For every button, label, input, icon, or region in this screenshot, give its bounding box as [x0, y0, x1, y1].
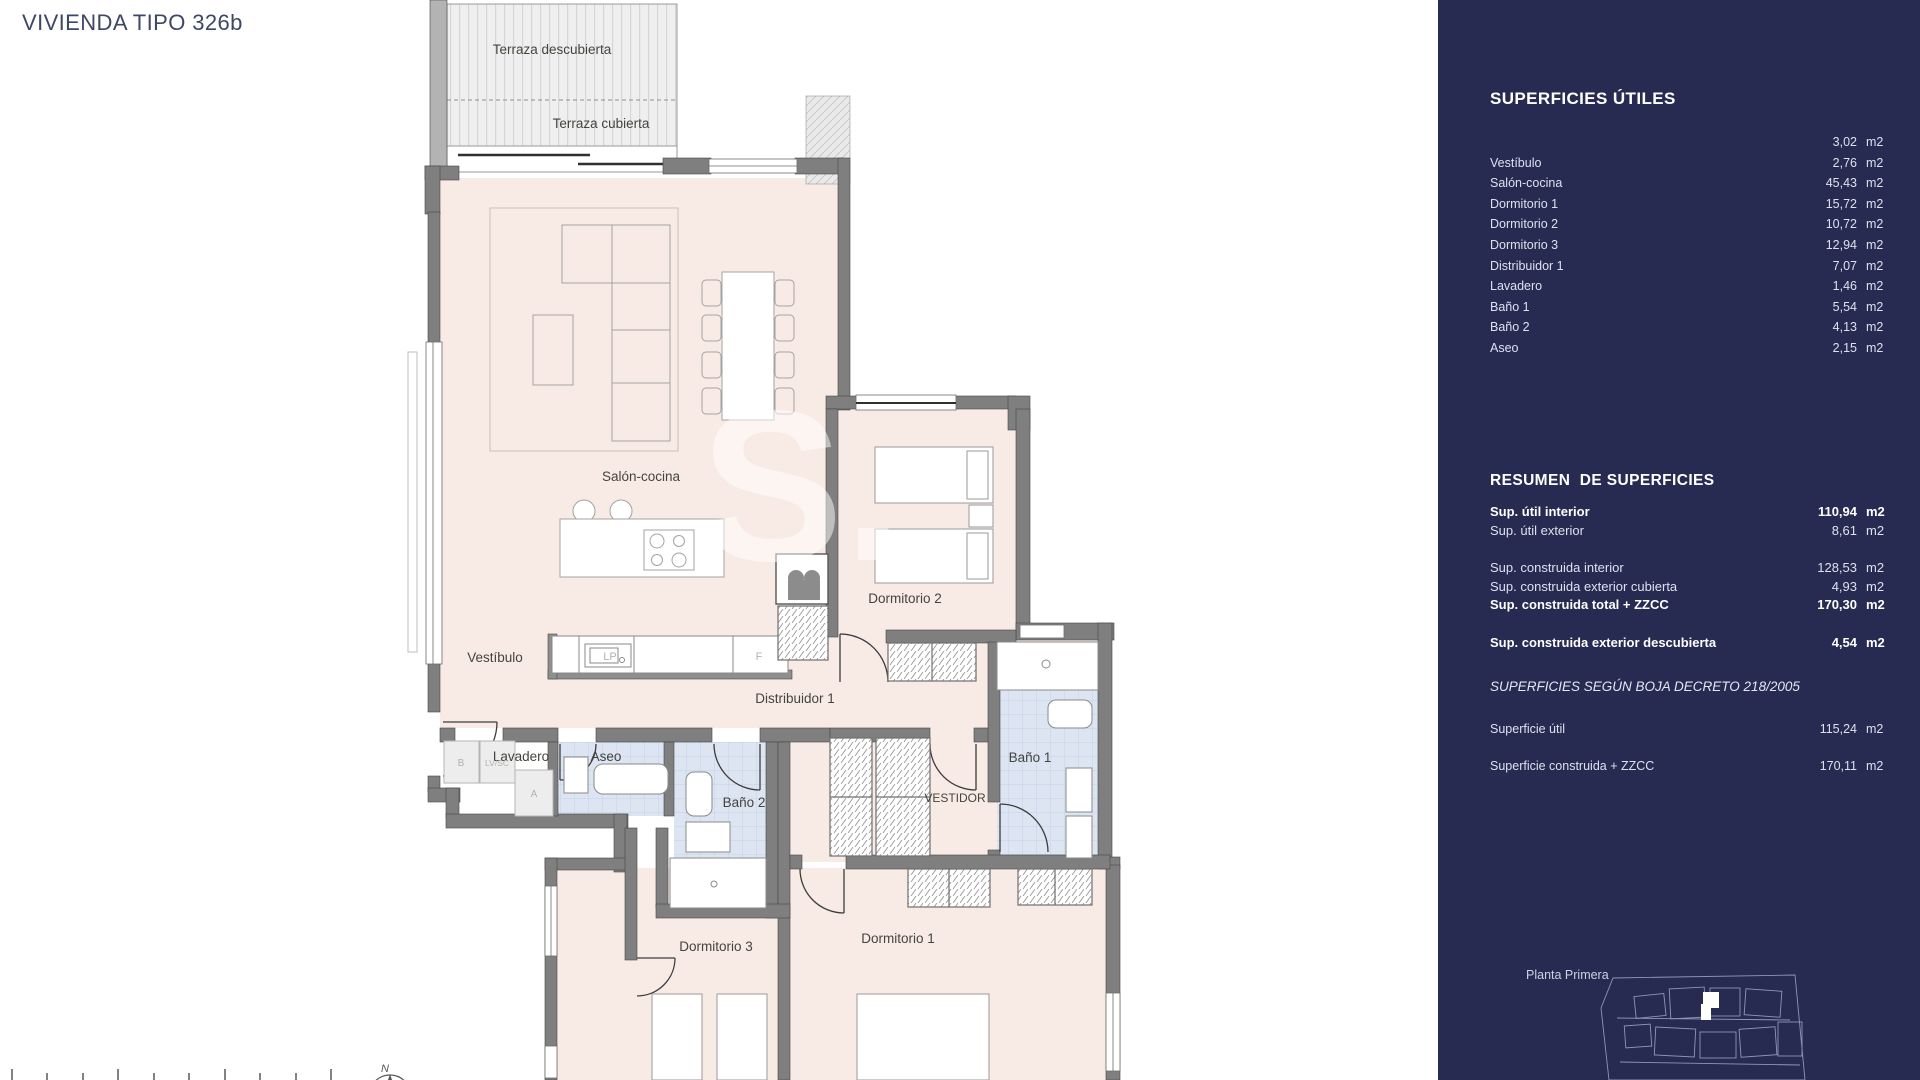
room-label-dormitorio1: Dormitorio 1: [861, 931, 935, 946]
resumen-section: RESUMEN DE SUPERFICIES Sup. útil interio…: [1490, 472, 1902, 653]
superficies-utiles-section: SUPERFICIES ÚTILES 3,02m2 Vestíbulo2,76m…: [1490, 89, 1902, 359]
site-key-plan: [1595, 970, 1920, 1080]
area-row: Dormitorio 312,94m2: [1490, 235, 1902, 256]
boja-title: SUPERFICIES SEGÚN BOJA DECRETO 218/2005: [1490, 679, 1902, 694]
label-lvsc: LV/SC: [485, 758, 509, 768]
label-f: F: [756, 651, 763, 663]
room-label-vestidor: VESTIDOR: [924, 791, 986, 805]
superficies-utiles-rows: 3,02m2 Vestíbulo2,76m2 Salón-cocina45,43…: [1490, 132, 1902, 359]
area-row: 3,02m2: [1490, 132, 1902, 153]
page: VIVIENDA TIPO 326b: [0, 0, 1920, 1080]
boja-section: SUPERFICIES SEGÚN BOJA DECRETO 218/2005 …: [1490, 679, 1902, 775]
resumen-group-construida: Sup. construida interior128,53m2 Sup. co…: [1490, 559, 1902, 615]
area-row: Aseo2,15m2: [1490, 338, 1902, 359]
summary-row: Sup. construida exterior descubierta4,54…: [1490, 634, 1902, 653]
resumen-group-util: Sup. útil interior110,94m2 Sup. útil ext…: [1490, 503, 1902, 540]
summary-row: Sup. construida total + ZZCC170,30m2: [1490, 596, 1902, 615]
terrace: [447, 4, 677, 172]
area-row: Dormitorio 115,72m2: [1490, 194, 1902, 215]
area-row: Lavadero1,46m2: [1490, 276, 1902, 297]
kitchen-counter: [552, 636, 788, 673]
summary-row: Sup. útil interior110,94m2: [1490, 503, 1902, 522]
room-label-dormitorio2: Dormitorio 2: [868, 591, 942, 606]
resumen-group-descubierta: Sup. construida exterior descubierta4,54…: [1490, 634, 1902, 653]
area-row: Distribuidor 17,07m2: [1490, 256, 1902, 277]
resumen-title: RESUMEN DE SUPERFICIES: [1490, 472, 1902, 490]
label-a: A: [531, 789, 538, 800]
floor-plan: S. Terraza descubierta Terraza cubierta …: [0, 0, 1438, 1080]
room-label-distribuidor: Distribuidor 1: [755, 691, 835, 706]
superficies-utiles-title: SUPERFICIES ÚTILES: [1490, 89, 1902, 109]
scale-bar: [12, 1069, 331, 1080]
summary-sidebar: SUPERFICIES ÚTILES 3,02m2 Vestíbulo2,76m…: [1438, 0, 1920, 1080]
room-label-vestibulo: Vestíbulo: [467, 650, 523, 665]
area-row: Baño 24,13m2: [1490, 317, 1902, 338]
summary-row: Sup. útil exterior8,61m2: [1490, 522, 1902, 541]
room-label-bano1: Baño 1: [1009, 750, 1052, 765]
room-label-dormitorio3: Dormitorio 3: [679, 939, 753, 954]
area-row: Baño 15,54m2: [1490, 297, 1902, 318]
summary-row: Sup. construida interior128,53m2: [1490, 559, 1902, 578]
floors-layer: [440, 178, 1110, 1080]
label-b: B: [458, 758, 465, 769]
room-label-terraza-descubierta: Terraza descubierta: [493, 42, 612, 57]
room-label-aseo: Aseo: [591, 749, 622, 764]
label-lp: LP: [603, 651, 616, 663]
watermark: S.: [700, 365, 903, 606]
summary-row: Superficie construida + ZZCC170,11m2: [1490, 757, 1902, 776]
area-row: Dormitorio 210,72m2: [1490, 214, 1902, 235]
room-label-salon: Salón-cocina: [602, 469, 681, 484]
room-label-terraza-cubierta: Terraza cubierta: [553, 116, 650, 131]
summary-row: Superficie útil115,24m2: [1490, 720, 1902, 739]
area-row: Salón-cocina45,43m2: [1490, 173, 1902, 194]
north-label: N: [381, 1063, 389, 1075]
area-row: Vestíbulo2,76m2: [1490, 153, 1902, 174]
summary-row: Sup. construida exterior cubierta4,93m2: [1490, 578, 1902, 597]
room-label-bano2: Baño 2: [723, 795, 766, 810]
north-arrow-icon: N: [369, 1063, 411, 1080]
